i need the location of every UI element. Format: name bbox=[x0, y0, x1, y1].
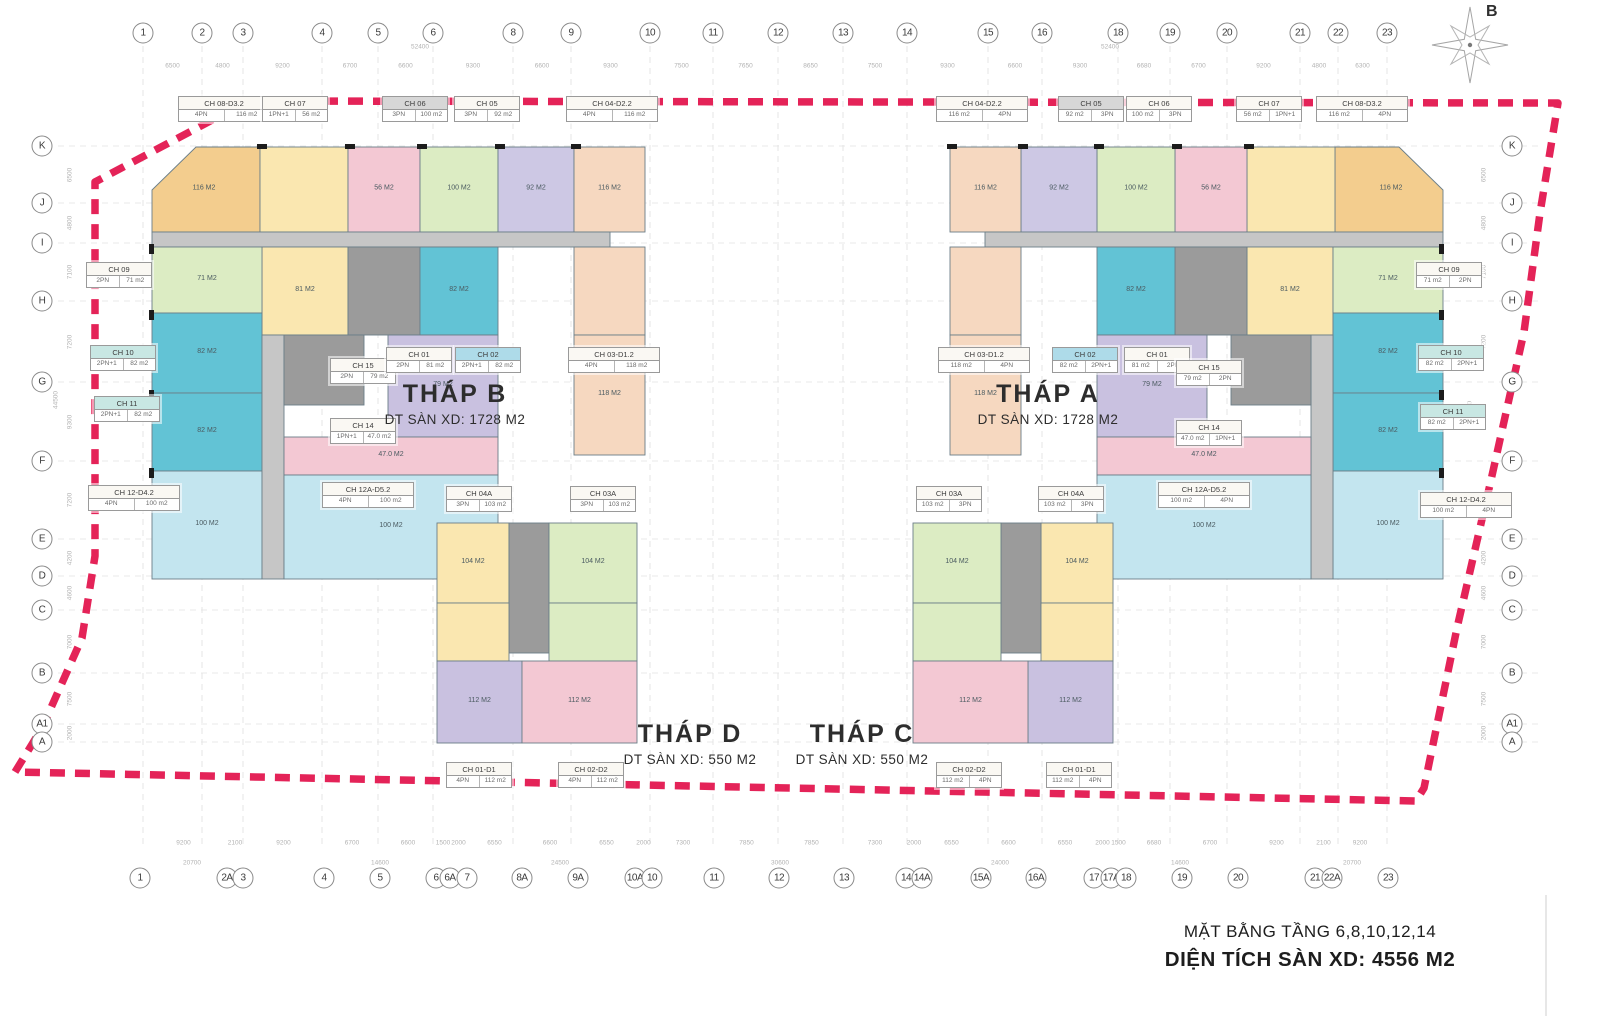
unit-label-area: 4PN bbox=[983, 110, 1028, 121]
axis-bubble-left: E bbox=[32, 529, 53, 550]
axis-bubble-left: D bbox=[32, 566, 53, 587]
axis-bubble-right: I bbox=[1502, 233, 1523, 254]
drawing-title-area: DIỆN TÍCH SÀN XD: 4556 M2 bbox=[1150, 948, 1470, 972]
unit-label-cells: 47.0 m21PN+1 bbox=[1177, 434, 1241, 445]
unit-label: CH 02-D24PN112 m2 bbox=[558, 762, 624, 788]
unit-label-bedrooms: 56 m2 bbox=[1237, 110, 1270, 121]
dimension-overall-text: 30600 bbox=[771, 860, 789, 867]
unit-label-area: 56 m2 bbox=[296, 110, 328, 121]
unit-label: CH 1182 m22PN+1 bbox=[1420, 404, 1486, 430]
unit-label-name: CH 07 bbox=[1237, 97, 1301, 110]
unit-label: CH 071PN+156 m2 bbox=[262, 96, 328, 122]
dimension-text: 4200 bbox=[67, 550, 74, 564]
dimension-text: 9300 bbox=[67, 414, 74, 428]
unit-label: CH 04A103 m23PN bbox=[1038, 486, 1104, 512]
unit-label-bedrooms: 2PN+1 bbox=[456, 361, 489, 372]
unit-label-bedrooms: 100 m2 bbox=[1127, 110, 1160, 121]
axis-bubble-top: 18 bbox=[1108, 23, 1129, 44]
unit-label-cells: 2PN+182 m2 bbox=[91, 359, 155, 370]
axis-bubble-top: 12 bbox=[768, 23, 789, 44]
dimension-text: 7000 bbox=[67, 634, 74, 648]
axis-bubble-top: 13 bbox=[833, 23, 854, 44]
unit-label: CH 12A-D5.24PN100 m2 bbox=[322, 482, 414, 508]
axis-bubble-top: 14 bbox=[897, 23, 918, 44]
dimension-text: 9300 bbox=[940, 63, 954, 70]
unit-label-bedrooms: 3PN bbox=[571, 500, 604, 511]
dimension-text: 6600 bbox=[535, 63, 549, 70]
axis-bubble-bottom: 15A bbox=[971, 868, 992, 889]
dimension-text: 7500 bbox=[674, 63, 688, 70]
unit-label-cells: 4PN100 m2 bbox=[89, 499, 179, 510]
axis-bubble-bottom: 22A bbox=[1322, 868, 1343, 889]
dimension-text: 1500 bbox=[436, 840, 450, 847]
tower-name-text: THÁP B bbox=[385, 380, 526, 409]
unit-label-name: CH 01-D1 bbox=[447, 763, 511, 776]
dimension-text: 6700 bbox=[345, 840, 359, 847]
unit-label: CH 04-D2.24PN116 m2 bbox=[566, 96, 658, 122]
tower-label: THÁP CDT SÀN XD: 550 M2 bbox=[796, 720, 929, 767]
dimension-text: 9300 bbox=[603, 63, 617, 70]
unit-label-name: CH 12A-D5.2 bbox=[323, 483, 413, 496]
unit-label-area: 92 m2 bbox=[488, 110, 520, 121]
unit-label: CH 0282 m22PN+1 bbox=[1052, 347, 1118, 373]
unit-label-area: 3PN bbox=[1092, 110, 1124, 121]
axis-bubble-top: 22 bbox=[1328, 23, 1349, 44]
axis-bubble-bottom: 13 bbox=[834, 868, 855, 889]
dimension-text: 6680 bbox=[1147, 840, 1161, 847]
dimension-text: 6680 bbox=[1137, 63, 1151, 70]
unit-label-bedrooms: 3PN bbox=[455, 110, 488, 121]
unit-label: CH 012PN81 m2 bbox=[386, 347, 452, 373]
unit-label: CH 1082 m22PN+1 bbox=[1418, 345, 1484, 371]
unit-label-area: 100 m2 bbox=[369, 496, 414, 507]
unit-label-bedrooms: 4PN bbox=[569, 361, 615, 372]
unit-label-area: 47.0 m2 bbox=[364, 432, 396, 443]
dimension-text: 6600 bbox=[543, 840, 557, 847]
unit-label-bedrooms: 2PN+1 bbox=[91, 359, 124, 370]
unit-label: CH 03A3PN103 m2 bbox=[570, 486, 636, 512]
axis-bubble-right: B bbox=[1502, 663, 1523, 684]
unit-label-area: 1PN+1 bbox=[1270, 110, 1302, 121]
axis-bubble-right: J bbox=[1502, 193, 1523, 214]
dimension-text: 2000 bbox=[907, 840, 921, 847]
unit-label-name: CH 02-D2 bbox=[937, 763, 1001, 776]
unit-label-name: CH 03A bbox=[917, 487, 981, 500]
unit-label-name: CH 02 bbox=[456, 348, 520, 361]
dimension-text: 7850 bbox=[804, 840, 818, 847]
dimension-text: 7500 bbox=[67, 691, 74, 705]
unit-label-bedrooms: 82 m2 bbox=[1053, 361, 1086, 372]
dimension-overall-text: 20700 bbox=[1343, 860, 1361, 867]
unit-label: CH 1579 m22PN bbox=[1176, 360, 1242, 386]
axis-bubble-left: I bbox=[32, 233, 53, 254]
unit-label-bedrooms: 4PN bbox=[179, 110, 225, 121]
unit-label: CH 04-D2.2116 m24PN bbox=[936, 96, 1028, 122]
dimension-text: 2000 bbox=[67, 726, 74, 740]
unit-label-area: 4PN bbox=[970, 776, 1002, 787]
unit-label-bedrooms: 81 m2 bbox=[1125, 361, 1158, 372]
axis-bubble-right: D bbox=[1502, 566, 1523, 587]
dimension-text: 4600 bbox=[67, 586, 74, 600]
axis-bubble-left: A bbox=[32, 732, 53, 753]
unit-label-cells: 4PN100 m2 bbox=[323, 496, 413, 507]
dimension-overall-text: 24500 bbox=[551, 860, 569, 867]
unit-label-name: CH 11 bbox=[95, 397, 159, 410]
unit-label-cells: 4PN118 m2 bbox=[569, 361, 659, 372]
dimension-overall-text: 20700 bbox=[183, 860, 201, 867]
tower-label: THÁP ADT SÀN XD: 1728 M2 bbox=[978, 380, 1119, 427]
unit-label: CH 063PN100 m2 bbox=[382, 96, 448, 122]
axis-bubble-top: 23 bbox=[1377, 23, 1398, 44]
unit-label-area: 4PN bbox=[1205, 496, 1250, 507]
unit-label-area: 2PN+1 bbox=[1454, 418, 1486, 429]
axis-bubble-top: 3 bbox=[233, 23, 254, 44]
dimension-text: 7300 bbox=[676, 840, 690, 847]
unit-label-area: 112 m2 bbox=[592, 776, 624, 787]
tower-area-text: DT SÀN XD: 1728 M2 bbox=[385, 412, 526, 427]
axis-bubble-top: 1 bbox=[133, 23, 154, 44]
axis-bubble-right: C bbox=[1502, 600, 1523, 621]
dimension-text: 9200 bbox=[1353, 840, 1367, 847]
axis-bubble-bottom: 19 bbox=[1172, 868, 1193, 889]
unit-label: CH 01-D14PN112 m2 bbox=[446, 762, 512, 788]
unit-label-bedrooms: 112 m2 bbox=[937, 776, 970, 787]
axis-bubble-left: J bbox=[32, 193, 53, 214]
unit-label-name: CH 10 bbox=[1419, 346, 1483, 359]
dimension-text: 4800 bbox=[215, 63, 229, 70]
unit-label-name: CH 05 bbox=[1059, 97, 1123, 110]
unit-label-bedrooms: 4PN bbox=[89, 499, 135, 510]
unit-label-area: 81 m2 bbox=[420, 361, 452, 372]
unit-label-cells: 2PN81 m2 bbox=[387, 361, 451, 372]
dimension-overall-text: 14600 bbox=[1171, 860, 1189, 867]
unit-label: CH 12A-D5.2100 m24PN bbox=[1158, 482, 1250, 508]
dimension-text: 2000 bbox=[1095, 840, 1109, 847]
unit-label-area: 100 m2 bbox=[416, 110, 448, 121]
unit-label: CH 04A3PN103 m2 bbox=[446, 486, 512, 512]
unit-label-area: 118 m2 bbox=[615, 361, 660, 372]
unit-label-name: CH 04-D2.2 bbox=[567, 97, 657, 110]
dimension-overall-text: 14600 bbox=[371, 860, 389, 867]
unit-label-area: 112 m2 bbox=[480, 776, 512, 787]
dimension-overall-text: 44500 bbox=[53, 391, 60, 409]
unit-label: CH 0756 m21PN+1 bbox=[1236, 96, 1302, 122]
unit-label-bedrooms: 82 m2 bbox=[1421, 418, 1454, 429]
dimension-text: 9200 bbox=[276, 840, 290, 847]
unit-label: CH 0971 m22PN bbox=[1416, 262, 1482, 288]
unit-label-cells: 56 m21PN+1 bbox=[1237, 110, 1301, 121]
unit-label: CH 08-D3.2116 m24PN bbox=[1316, 96, 1408, 122]
axis-bubble-right: K bbox=[1502, 136, 1523, 157]
axis-bubble-bottom: 18 bbox=[1116, 868, 1137, 889]
unit-label-bedrooms: 2PN bbox=[387, 361, 420, 372]
dimension-text: 6550 bbox=[487, 840, 501, 847]
unit-label-cells: 103 m23PN bbox=[1039, 500, 1103, 511]
unit-label: CH 08-D3.24PN116 m2 bbox=[178, 96, 270, 122]
unit-label-name: CH 09 bbox=[87, 263, 151, 276]
unit-label-cells: 100 m23PN bbox=[1127, 110, 1191, 121]
unit-label-cells: 3PN103 m2 bbox=[571, 500, 635, 511]
unit-label-cells: 3PN103 m2 bbox=[447, 500, 511, 511]
axis-bubble-left: C bbox=[32, 600, 53, 621]
axis-bubble-top: 11 bbox=[703, 23, 724, 44]
dimension-text: 7200 bbox=[67, 334, 74, 348]
dimension-text: 7100 bbox=[67, 265, 74, 279]
unit-label: CH 12-D4.24PN100 m2 bbox=[88, 485, 180, 511]
dimension-text: 9200 bbox=[1269, 840, 1283, 847]
dimension-text: 6500 bbox=[67, 167, 74, 181]
dimension-text: 7300 bbox=[868, 840, 882, 847]
unit-label-area: 3PN bbox=[950, 500, 982, 511]
unit-label-cells: 118 m24PN bbox=[939, 361, 1029, 372]
unit-label-area: 3PN bbox=[1072, 500, 1104, 511]
axis-bubble-left: H bbox=[32, 291, 53, 312]
axis-bubble-top: 8 bbox=[503, 23, 524, 44]
unit-label: CH 0592 m23PN bbox=[1058, 96, 1124, 122]
dimension-text: 6550 bbox=[1058, 840, 1072, 847]
dimension-text: 2000 bbox=[636, 840, 650, 847]
axis-bubble-bottom: 4 bbox=[314, 868, 335, 889]
axis-bubble-top: 4 bbox=[312, 23, 333, 44]
unit-label-bedrooms: 3PN bbox=[447, 500, 480, 511]
dimension-text: 6600 bbox=[398, 63, 412, 70]
tower-area-text: DT SÀN XD: 1728 M2 bbox=[978, 412, 1119, 427]
axis-bubble-bottom: 5 bbox=[370, 868, 391, 889]
unit-label-bedrooms: 47.0 m2 bbox=[1177, 434, 1210, 445]
unit-label: CH 092PN71 m2 bbox=[86, 262, 152, 288]
unit-label-name: CH 04A bbox=[1039, 487, 1103, 500]
unit-label-cells: 71 m22PN bbox=[1417, 276, 1481, 287]
unit-label-bedrooms: 103 m2 bbox=[1039, 500, 1072, 511]
tower-label: THÁP BDT SÀN XD: 1728 M2 bbox=[385, 380, 526, 427]
unit-label-area: 71 m2 bbox=[120, 276, 152, 287]
unit-label-area: 4PN bbox=[1467, 506, 1512, 517]
unit-label-area: 103 m2 bbox=[480, 500, 512, 511]
dimension-text: 2000 bbox=[1481, 726, 1488, 740]
unit-label-cells: 3PN100 m2 bbox=[383, 110, 447, 121]
dimension-text: 8650 bbox=[803, 63, 817, 70]
dimension-text: 6600 bbox=[1008, 63, 1022, 70]
annotation-overlay: 123456891011121314151618192021222312A345… bbox=[0, 0, 1600, 1023]
unit-label: CH 102PN+182 m2 bbox=[90, 345, 156, 371]
unit-label-bedrooms: 4PN bbox=[567, 110, 613, 121]
axis-bubble-bottom: 8A bbox=[512, 868, 533, 889]
unit-label-name: CH 14 bbox=[1177, 421, 1241, 434]
dimension-text: 9200 bbox=[176, 840, 190, 847]
axis-bubble-left: G bbox=[32, 372, 53, 393]
dimension-text: 4200 bbox=[1481, 550, 1488, 564]
unit-label-cells: 4PN112 m2 bbox=[447, 776, 511, 787]
unit-label-cells: 116 m24PN bbox=[1317, 110, 1407, 121]
axis-bubble-left: B bbox=[32, 663, 53, 684]
unit-label-name: CH 12A-D5.2 bbox=[1159, 483, 1249, 496]
tower-name-text: THÁP C bbox=[796, 720, 929, 749]
unit-label-cells: 2PN71 m2 bbox=[87, 276, 151, 287]
unit-label-name: CH 01 bbox=[387, 348, 451, 361]
unit-label-bedrooms: 1PN+1 bbox=[263, 110, 296, 121]
axis-bubble-bottom: 3 bbox=[233, 868, 254, 889]
dimension-text: 6700 bbox=[343, 63, 357, 70]
axis-bubble-top: 9 bbox=[561, 23, 582, 44]
unit-label-area: 4PN bbox=[1363, 110, 1408, 121]
axis-bubble-bottom: 23 bbox=[1378, 868, 1399, 889]
unit-label-name: CH 02-D2 bbox=[559, 763, 623, 776]
unit-label-cells: 3PN92 m2 bbox=[455, 110, 519, 121]
axis-bubble-right: H bbox=[1502, 291, 1523, 312]
unit-label-cells: 4PN116 m2 bbox=[567, 110, 657, 121]
dimension-text: 7650 bbox=[738, 63, 752, 70]
axis-bubble-top: 6 bbox=[423, 23, 444, 44]
dimension-text: 4600 bbox=[1481, 586, 1488, 600]
unit-label-cells: 82 m22PN+1 bbox=[1053, 361, 1117, 372]
unit-label-cells: 82 m22PN+1 bbox=[1419, 359, 1483, 370]
unit-label-name: CH 04A bbox=[447, 487, 511, 500]
unit-label: CH 06100 m23PN bbox=[1126, 96, 1192, 122]
dimension-text: 1500 bbox=[1111, 840, 1125, 847]
unit-label-cells: 112 m24PN bbox=[937, 776, 1001, 787]
dimension-text: 9300 bbox=[1073, 63, 1087, 70]
axis-bubble-right: A bbox=[1502, 732, 1523, 753]
dimension-text: 2100 bbox=[228, 840, 242, 847]
unit-label-area: 4PN bbox=[1080, 776, 1112, 787]
unit-label: CH 022PN+182 m2 bbox=[455, 347, 521, 373]
unit-label-area: 2PN bbox=[1210, 374, 1242, 385]
unit-label: CH 01-D1112 m24PN bbox=[1046, 762, 1112, 788]
unit-label-area: 82 m2 bbox=[489, 361, 521, 372]
unit-label-area: 103 m2 bbox=[604, 500, 636, 511]
axis-bubble-top: 15 bbox=[978, 23, 999, 44]
axis-bubble-bottom: 12 bbox=[769, 868, 790, 889]
unit-label-bedrooms: 118 m2 bbox=[939, 361, 985, 372]
unit-label-name: CH 03A bbox=[571, 487, 635, 500]
unit-label-area: 116 m2 bbox=[613, 110, 658, 121]
unit-label-cells: 100 m24PN bbox=[1421, 506, 1511, 517]
axis-bubble-bottom: 20 bbox=[1228, 868, 1249, 889]
unit-label: CH 03-D1.2118 m24PN bbox=[938, 347, 1030, 373]
axis-bubble-top: 20 bbox=[1217, 23, 1238, 44]
unit-label: CH 02-D2112 m24PN bbox=[936, 762, 1002, 788]
unit-label-name: CH 05 bbox=[455, 97, 519, 110]
axis-bubble-right: G bbox=[1502, 372, 1523, 393]
unit-label-area: 4PN bbox=[985, 361, 1030, 372]
unit-label-bedrooms: 4PN bbox=[447, 776, 480, 787]
unit-label: CH 1447.0 m21PN+1 bbox=[1176, 420, 1242, 446]
unit-label-area: 2PN+1 bbox=[1452, 359, 1484, 370]
tower-label: THÁP DDT SÀN XD: 550 M2 bbox=[624, 720, 757, 767]
unit-label-name: CH 03-D1.2 bbox=[939, 348, 1029, 361]
unit-label-cells: 112 m24PN bbox=[1047, 776, 1111, 787]
unit-label: CH 03-D1.24PN118 m2 bbox=[568, 347, 660, 373]
dimension-text: 6700 bbox=[1203, 840, 1217, 847]
unit-label-area: 2PN+1 bbox=[1086, 361, 1118, 372]
dimension-text: 4800 bbox=[67, 216, 74, 230]
unit-label-bedrooms: 1PN+1 bbox=[331, 432, 364, 443]
dimension-text: 2000 bbox=[451, 840, 465, 847]
unit-label-name: CH 15 bbox=[1177, 361, 1241, 374]
axis-bubble-top: 21 bbox=[1290, 23, 1311, 44]
dimension-text: 4800 bbox=[1312, 63, 1326, 70]
axis-bubble-left: F bbox=[32, 451, 53, 472]
unit-label-cells: 4PN116 m2 bbox=[179, 110, 269, 121]
unit-label-name: CH 08-D3.2 bbox=[1317, 97, 1407, 110]
unit-label-cells: 4PN112 m2 bbox=[559, 776, 623, 787]
unit-label-name: CH 01-D1 bbox=[1047, 763, 1111, 776]
unit-label-bedrooms: 100 m2 bbox=[1421, 506, 1467, 517]
dimension-overall-text: 52400 bbox=[411, 44, 429, 51]
unit-label-bedrooms: 100 m2 bbox=[1159, 496, 1205, 507]
axis-bubble-bottom: 11 bbox=[704, 868, 725, 889]
dimension-overall-text: 52400 bbox=[1101, 44, 1119, 51]
unit-label-bedrooms: 3PN bbox=[383, 110, 416, 121]
axis-bubble-bottom: 7 bbox=[457, 868, 478, 889]
unit-label-bedrooms: 2PN bbox=[331, 372, 364, 383]
axis-bubble-top: 16 bbox=[1032, 23, 1053, 44]
unit-label-cells: 82 m22PN+1 bbox=[1421, 418, 1485, 429]
unit-label-name: CH 09 bbox=[1417, 263, 1481, 276]
unit-label-area: 82 m2 bbox=[124, 359, 156, 370]
unit-label-name: CH 12-D4.2 bbox=[1421, 493, 1511, 506]
axis-bubble-right: E bbox=[1502, 529, 1523, 550]
unit-label-area: 1PN+1 bbox=[1210, 434, 1242, 445]
unit-label-area: 3PN bbox=[1160, 110, 1192, 121]
unit-label: CH 12-D4.2100 m24PN bbox=[1420, 492, 1512, 518]
axis-bubble-bottom: 1 bbox=[130, 868, 151, 889]
unit-label-name: CH 06 bbox=[383, 97, 447, 110]
unit-label-bedrooms: 2PN bbox=[87, 276, 120, 287]
unit-label-bedrooms: 82 m2 bbox=[1419, 359, 1452, 370]
dimension-text: 9300 bbox=[466, 63, 480, 70]
dimension-text: 7500 bbox=[868, 63, 882, 70]
dimension-text: 6600 bbox=[1001, 840, 1015, 847]
unit-label-cells: 116 m24PN bbox=[937, 110, 1027, 121]
dimension-text: 6600 bbox=[401, 840, 415, 847]
dimension-text: 6500 bbox=[1481, 167, 1488, 181]
dimension-text: 4800 bbox=[1481, 216, 1488, 230]
unit-label-name: CH 07 bbox=[263, 97, 327, 110]
axis-bubble-right: F bbox=[1502, 451, 1523, 472]
unit-label-bedrooms: 4PN bbox=[323, 496, 369, 507]
dimension-text: 6550 bbox=[944, 840, 958, 847]
dimension-text: 9200 bbox=[1256, 63, 1270, 70]
unit-label-name: CH 04-D2.2 bbox=[937, 97, 1027, 110]
title-block: MẶT BẰNG TẦNG 6,8,10,12,14 DIỆN TÍCH SÀN… bbox=[1150, 922, 1470, 972]
unit-label-bedrooms: 112 m2 bbox=[1047, 776, 1080, 787]
dimension-text: 7200 bbox=[67, 493, 74, 507]
dimension-overall-text: 24000 bbox=[991, 860, 1009, 867]
drawing-title-floors: MẶT BẰNG TẦNG 6,8,10,12,14 bbox=[1150, 922, 1470, 942]
unit-label-name: CH 08-D3.2 bbox=[179, 97, 269, 110]
unit-label-name: CH 03-D1.2 bbox=[569, 348, 659, 361]
floor-plan-canvas: 116 M256 M2100 M292 M2116 M281 M282 M211… bbox=[0, 0, 1600, 1023]
unit-label-cells: 92 m23PN bbox=[1059, 110, 1123, 121]
unit-label: CH 053PN92 m2 bbox=[454, 96, 520, 122]
unit-label-cells: 100 m24PN bbox=[1159, 496, 1249, 507]
dimension-text: 2100 bbox=[1316, 840, 1330, 847]
unit-label-bedrooms: 92 m2 bbox=[1059, 110, 1092, 121]
unit-label-bedrooms: 4PN bbox=[559, 776, 592, 787]
unit-label-cells: 79 m22PN bbox=[1177, 374, 1241, 385]
axis-bubble-top: 19 bbox=[1160, 23, 1181, 44]
axis-bubble-bottom: 14A bbox=[912, 868, 933, 889]
dimension-text: 6550 bbox=[599, 840, 613, 847]
unit-label-name: CH 02 bbox=[1053, 348, 1117, 361]
unit-label: CH 03A103 m23PN bbox=[916, 486, 982, 512]
dimension-text: 7500 bbox=[1481, 691, 1488, 705]
unit-label-area: 82 m2 bbox=[128, 410, 160, 421]
tower-name-text: THÁP D bbox=[624, 720, 757, 749]
tower-name-text: THÁP A bbox=[978, 380, 1119, 409]
unit-label: CH 112PN+182 m2 bbox=[94, 396, 160, 422]
